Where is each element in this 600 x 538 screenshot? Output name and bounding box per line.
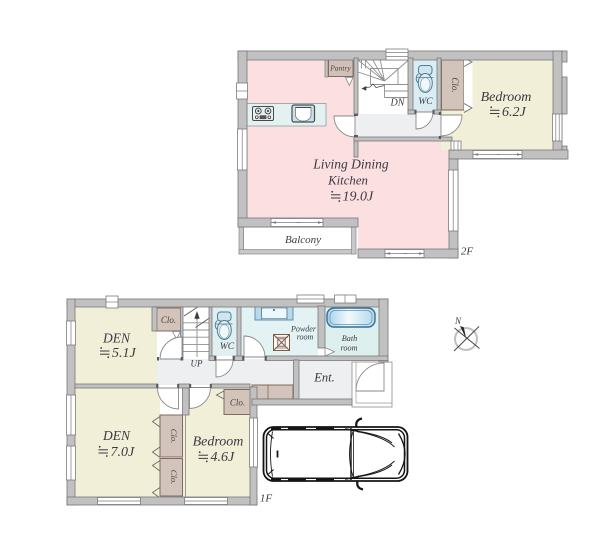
svg-text:DEN: DEN xyxy=(102,428,131,443)
svg-text:UP: UP xyxy=(191,359,203,369)
svg-text:DN: DN xyxy=(390,98,406,109)
svg-text:Bedroom: Bedroom xyxy=(481,90,532,105)
svg-text:6.2J: 6.2J xyxy=(502,105,527,120)
svg-text:Pantry: Pantry xyxy=(329,64,351,73)
svg-text:Ent.: Ent. xyxy=(313,371,334,385)
svg-text:Clo.: Clo. xyxy=(450,77,460,92)
svg-text:Clo.: Clo. xyxy=(230,398,245,408)
svg-text:WC: WC xyxy=(418,97,433,107)
svg-text:Living Dining: Living Dining xyxy=(312,157,389,172)
svg-text:Clo.: Clo. xyxy=(169,429,179,443)
svg-text:room: room xyxy=(297,333,314,342)
svg-text:room: room xyxy=(341,344,358,353)
svg-text:1F: 1F xyxy=(260,493,273,505)
svg-text:4.6J: 4.6J xyxy=(211,450,236,465)
svg-text:DEN: DEN xyxy=(102,331,131,346)
svg-text:Clo.: Clo. xyxy=(161,315,176,325)
svg-text:Balcony: Balcony xyxy=(285,234,321,246)
svg-text:Bedroom: Bedroom xyxy=(193,435,244,450)
svg-text:5.1J: 5.1J xyxy=(112,346,137,361)
svg-text:Bath: Bath xyxy=(342,334,357,343)
svg-text:N: N xyxy=(454,316,462,326)
svg-text:Kitchen: Kitchen xyxy=(327,174,368,188)
svg-text:7.0J: 7.0J xyxy=(111,445,136,460)
svg-text:Clo.: Clo. xyxy=(169,470,179,484)
svg-text:19.0J: 19.0J xyxy=(343,190,375,205)
svg-text:WC: WC xyxy=(220,342,235,352)
svg-text:2F: 2F xyxy=(461,246,474,258)
